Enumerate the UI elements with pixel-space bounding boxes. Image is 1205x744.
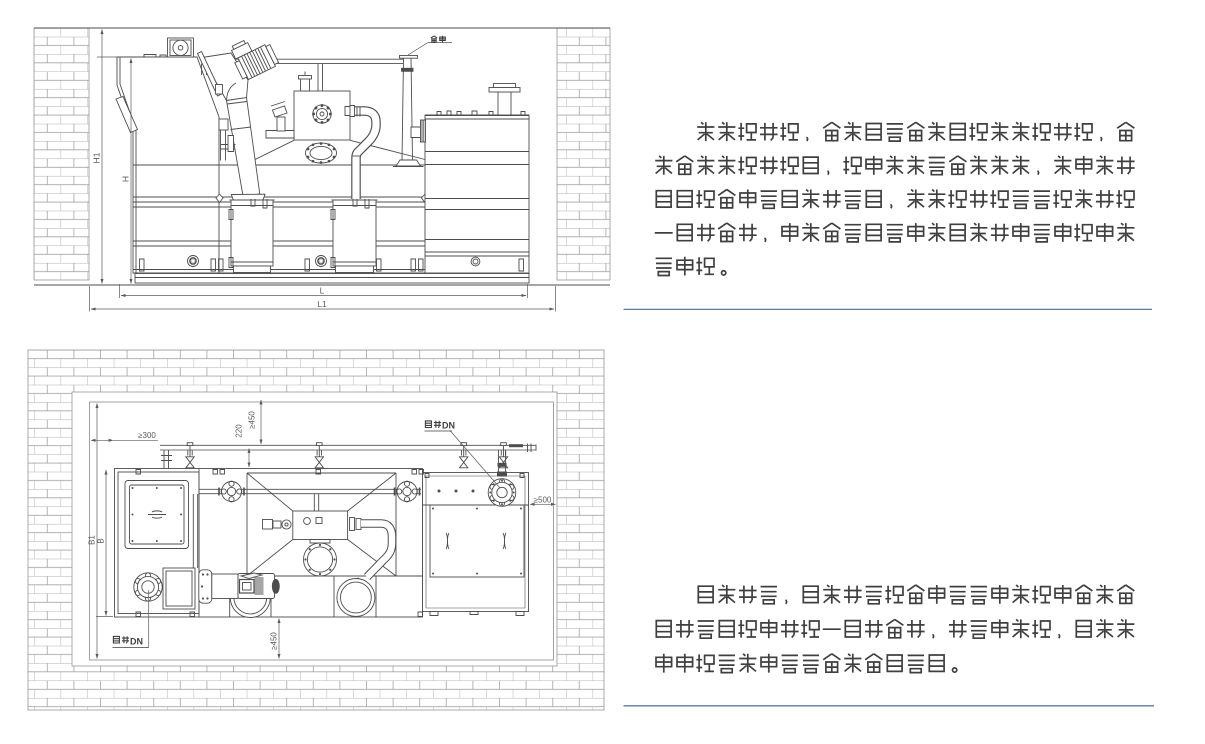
- svg-text:220: 220: [235, 424, 244, 438]
- svg-text:DN: DN: [442, 421, 455, 431]
- svg-text:H: H: [121, 176, 131, 182]
- svg-text:≥450: ≥450: [248, 411, 257, 429]
- svg-text:L: L: [320, 286, 325, 296]
- svg-text:≥450: ≥450: [270, 632, 279, 650]
- svg-text:L1: L1: [317, 299, 327, 309]
- svg-text:B: B: [97, 538, 106, 543]
- svg-text:≥500: ≥500: [534, 496, 552, 505]
- svg-text:H1: H1: [92, 152, 102, 163]
- svg-text:DN: DN: [130, 637, 143, 647]
- svg-text:≥300: ≥300: [138, 431, 156, 440]
- svg-text:B1: B1: [88, 535, 97, 545]
